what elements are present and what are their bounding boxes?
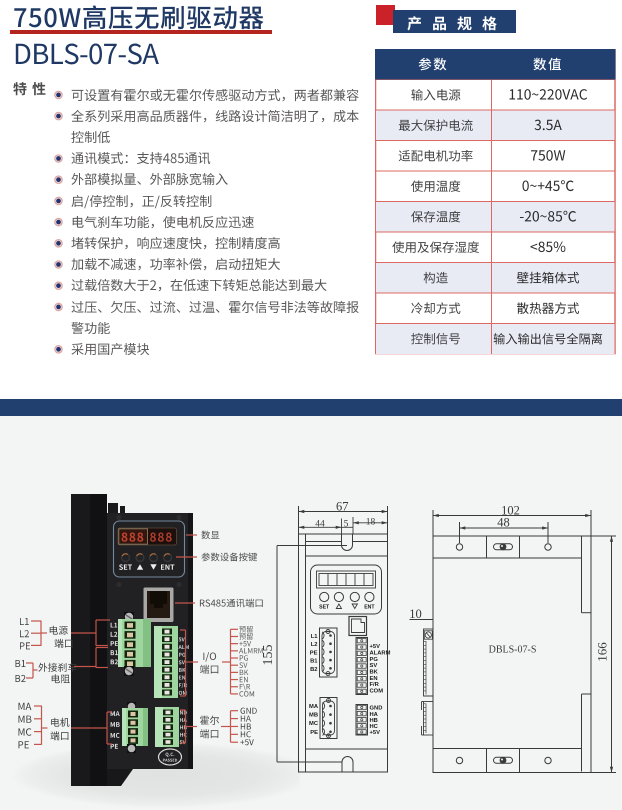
svg-text:HC: HC bbox=[370, 724, 379, 730]
svg-text:18: 18 bbox=[366, 517, 376, 527]
svg-text:+5V: +5V bbox=[370, 644, 381, 650]
svg-text:MB: MB bbox=[309, 713, 318, 719]
svg-text:GND: GND bbox=[370, 706, 383, 712]
svg-text:155: 155 bbox=[261, 645, 276, 666]
svg-text:+5V: +5V bbox=[370, 730, 381, 736]
svg-text:PE: PE bbox=[310, 730, 318, 736]
svg-text:SV: SV bbox=[370, 663, 378, 669]
svg-text:B1: B1 bbox=[310, 659, 318, 665]
svg-text:L1: L1 bbox=[311, 634, 319, 640]
svg-text:44: 44 bbox=[315, 519, 325, 529]
svg-text:ALARM: ALARM bbox=[370, 651, 391, 657]
svg-text:SET: SET bbox=[319, 605, 330, 611]
svg-text:EN: EN bbox=[370, 676, 378, 682]
svg-text:ENT: ENT bbox=[364, 605, 375, 611]
svg-text:HB: HB bbox=[370, 718, 378, 724]
svg-text:BK: BK bbox=[370, 670, 379, 676]
svg-text:166: 166 bbox=[595, 642, 610, 662]
svg-text:MC: MC bbox=[309, 721, 319, 727]
svg-text:5: 5 bbox=[344, 519, 349, 529]
svg-text:L2: L2 bbox=[311, 642, 318, 648]
svg-text:48: 48 bbox=[497, 515, 510, 529]
svg-text:PE: PE bbox=[310, 650, 318, 656]
svg-text:MA: MA bbox=[309, 704, 319, 710]
svg-text:HA: HA bbox=[370, 712, 379, 718]
svg-text:DBLS-07-S: DBLS-07-S bbox=[489, 645, 537, 656]
svg-text:B2: B2 bbox=[310, 667, 317, 673]
svg-text:10: 10 bbox=[409, 607, 422, 621]
svg-text:PG: PG bbox=[370, 657, 379, 663]
svg-text:F/R: F/R bbox=[370, 682, 380, 688]
svg-text:COM: COM bbox=[370, 689, 384, 695]
